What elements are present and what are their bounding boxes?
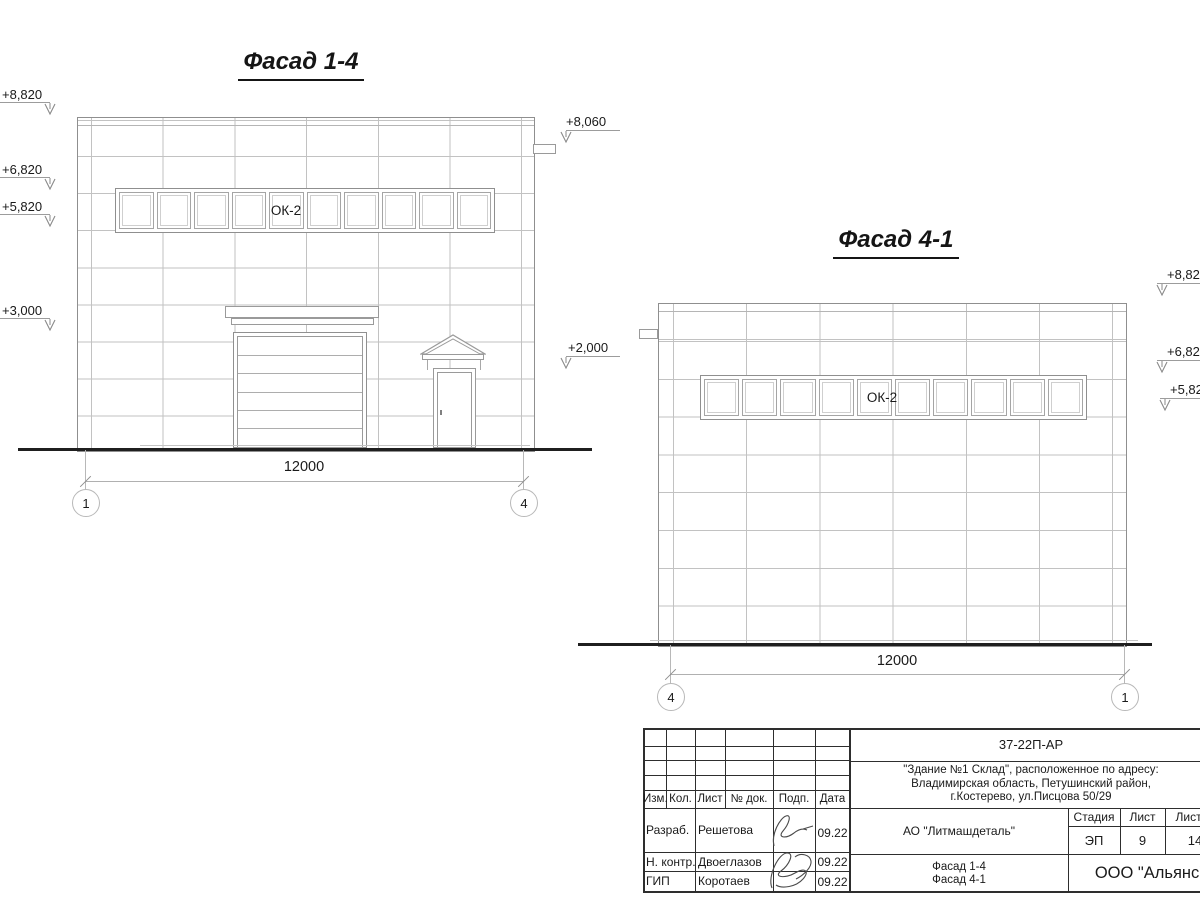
window-pane [382,192,417,229]
facade-1-4-title: Фасад 1-4 [238,48,364,81]
date-gip: 09.22 [815,875,850,889]
axis-bubble-4: 4 [510,489,538,517]
col-header-list: Лист [695,793,725,805]
date-razrab: 09.22 [815,826,850,840]
window-pane [780,379,815,416]
gate-slat-line [238,428,362,429]
titleblock-line [850,808,1200,809]
door-canopy-fascia [422,354,484,360]
facade-4-1-wall [658,303,1127,647]
elevation-leader [0,102,50,103]
plinth-line [650,640,1138,641]
elevation-leader [0,318,50,319]
door-leaf [437,372,472,448]
doc-number: 37-22П-АР [850,737,1200,752]
canopy-post [427,360,428,370]
window-pane [194,192,229,229]
gate-canopy-fascia [231,318,374,325]
elevation-label: +6,820 [2,162,42,177]
col-header-doc: № док. [725,793,773,805]
name-gip: Коротаев [698,874,750,888]
date-nkontr: 09.22 [815,855,850,869]
window-pane [419,192,454,229]
titleblock-line [643,871,850,872]
titleblock-line [643,852,850,853]
parapet-cap-line [78,125,534,126]
dimension-line [670,674,1124,675]
elevation-leader [0,177,50,178]
titleblock-line [1068,826,1200,827]
col-header-kol: Кол. [666,793,695,805]
titleblock-line [850,854,1200,855]
titleblock-line [643,775,850,776]
window-pane [742,379,777,416]
elevation-arrow-icon [560,357,572,370]
titleblock-line [850,761,1200,762]
door-handle [440,410,442,415]
elevation-label: +8,820 [1167,267,1200,282]
gate-slat-line [238,410,362,411]
axis-bubble-1: 1 [72,489,100,517]
elevation-label: +8,060 [566,114,606,129]
titleblock-border [643,728,1200,730]
project-address-line2: Владимирская область, Петушинский район, [850,778,1200,790]
elevation-label: +6,820 [1167,344,1200,359]
elevation-arrow-icon [44,215,56,228]
extension-line [1124,645,1125,688]
gate-canopy [225,306,379,318]
dimension-value: 12000 [274,459,334,475]
elevation-arrow-icon [1159,399,1171,412]
client-company: АО "Литмашдеталь" [850,824,1068,838]
elevation-arrow-icon [44,103,56,116]
elevation-leader [0,214,50,215]
facade-4-1-title: Фасад 4-1 [833,226,959,259]
window-pane [119,192,154,229]
plinth-line [140,445,530,446]
ground-line [18,448,592,451]
col-header-izm: Изм. [643,793,666,805]
sheet-subject-line1: Фасад 1-4 [850,861,1068,873]
elevation-label: +5,820 [2,199,42,214]
gate-slat-line [238,355,362,356]
signature-razrab [768,812,816,852]
elevation-arrow-icon [1156,361,1168,374]
name-nkontr: Двоеглазов [698,855,762,869]
stage-value: ЭП [1068,833,1120,848]
elevation-label: +3,000 [2,303,42,318]
downspout-outlet [533,144,556,154]
role-razrab: Разраб. [646,823,689,837]
sheets-label: Листов [1165,810,1200,824]
elevation-arrow-icon [44,319,56,332]
titleblock-line [643,808,850,809]
role-nkontr: Н. контр. [646,855,696,869]
window-pane [457,192,492,229]
window-pane [971,379,1006,416]
titleblock-line [643,746,850,747]
design-org: ООО "Альянс" [1068,864,1200,883]
project-address-line3: г.Костерево, ул.Писцова 50/29 [850,791,1200,803]
parapet-cap-line [659,311,1126,312]
window-pane [157,192,192,229]
sheet-label: Лист [1120,810,1165,824]
dimension-value: 12000 [867,653,927,669]
window-pane [1010,379,1045,416]
elevation-leader [566,356,620,357]
axis-bubble-4: 4 [657,683,685,711]
elevation-label: +8,820 [2,87,42,102]
sheets-total: 14 [1165,833,1200,848]
downspout-outlet [639,329,658,339]
col-header-podp: Подп. [773,793,815,805]
window-pane [933,379,968,416]
gate-slat-line [238,392,362,393]
role-gip: ГИП [646,874,670,888]
elevation-label: +2,000 [568,340,608,355]
window-pane [344,192,379,229]
elevation-label: +5,820 [1170,382,1200,397]
titleblock-border [643,728,645,893]
elevation-leader [566,130,620,131]
sheet-number: 9 [1120,833,1165,848]
window-mark-label: ОК-2 [852,390,912,405]
stage-label: Стадия [1068,810,1120,824]
window-mark-label: ОК-2 [256,203,316,218]
window-pane [704,379,739,416]
titleblock-line [643,790,850,791]
sheet-subject-line2: Фасад 4-1 [850,874,1068,886]
dimension-line [85,481,523,482]
col-header-data: Дата [815,793,850,805]
window-pane [819,379,854,416]
canopy-post [480,360,481,370]
signature-nkontr-gip [764,848,818,892]
elevation-arrow-icon [44,178,56,191]
window-pane [1048,379,1083,416]
extension-line [670,645,671,688]
elevation-arrow-icon [560,131,572,144]
axis-bubble-1: 1 [1111,683,1139,711]
ground-line [578,643,1152,646]
titleblock-border [643,891,1200,893]
drawing-sheet: Фасад 1-4 ОК-2 [0,0,1200,900]
name-razrab: Решетова [698,823,753,837]
gate-slat-line [238,373,362,374]
elevation-arrow-icon [1156,284,1168,297]
project-address-line1: "Здание №1 Склад", расположенное по адре… [850,764,1200,776]
titleblock-line [643,760,850,761]
